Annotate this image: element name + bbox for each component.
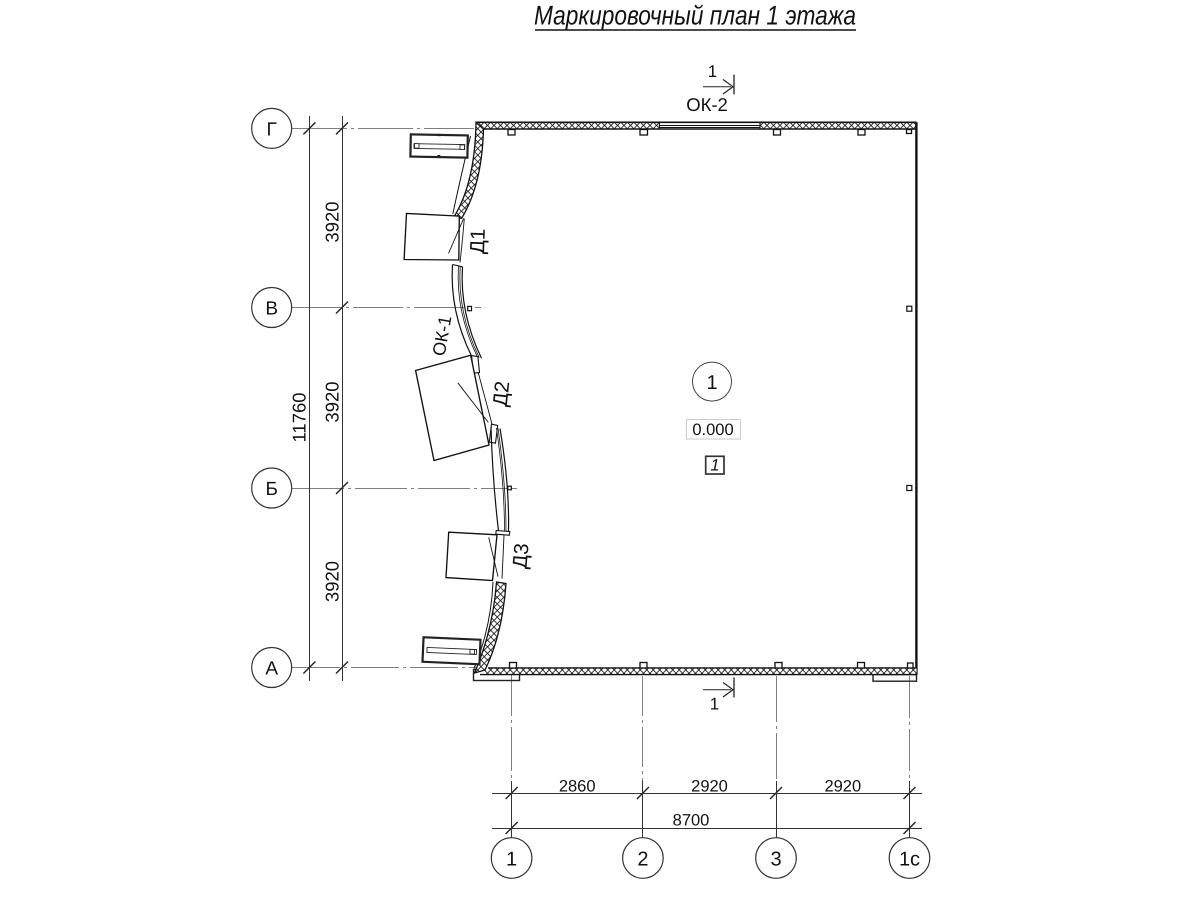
- svg-text:1с: 1с: [899, 848, 920, 870]
- svg-text:2: 2: [637, 848, 648, 870]
- svg-text:Маркировочный план 1 этажа: Маркировочный план 1 этажа: [534, 1, 856, 31]
- svg-text:Б: Б: [265, 479, 277, 500]
- svg-text:1: 1: [710, 695, 719, 714]
- svg-text:1: 1: [708, 62, 717, 81]
- svg-text:ОК-2: ОК-2: [686, 94, 728, 115]
- svg-text:Г: Г: [267, 119, 277, 140]
- svg-text:3: 3: [770, 848, 781, 870]
- svg-text:Д1: Д1: [466, 228, 490, 254]
- svg-text:3920: 3920: [322, 561, 343, 602]
- svg-text:3920: 3920: [322, 201, 343, 242]
- svg-text:2920: 2920: [691, 778, 728, 796]
- svg-text:8700: 8700: [673, 812, 710, 830]
- svg-text:11760: 11760: [289, 392, 310, 442]
- svg-text:1: 1: [710, 456, 719, 474]
- svg-text:1: 1: [706, 372, 717, 394]
- svg-text:А: А: [265, 659, 278, 680]
- svg-text:Д2: Д2: [489, 380, 515, 408]
- svg-text:2920: 2920: [824, 778, 861, 796]
- svg-text:2860: 2860: [559, 778, 596, 796]
- svg-text:В: В: [265, 299, 278, 320]
- svg-text:0.000: 0.000: [692, 421, 733, 439]
- svg-text:3920: 3920: [322, 381, 343, 422]
- svg-text:Д3: Д3: [508, 542, 533, 569]
- svg-text:ОК-1: ОК-1: [429, 314, 456, 357]
- svg-text:1: 1: [506, 848, 517, 870]
